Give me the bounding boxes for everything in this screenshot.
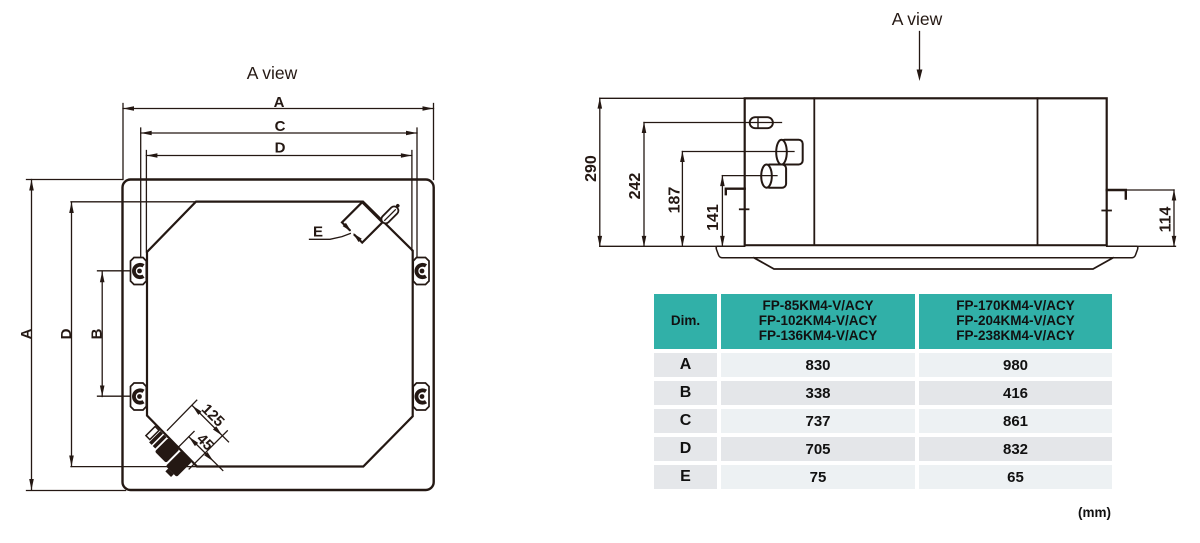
- svg-text:141: 141: [705, 204, 722, 231]
- svg-text:187: 187: [667, 187, 684, 214]
- svg-text:E: E: [313, 224, 323, 241]
- svg-text:A: A: [274, 94, 285, 111]
- svg-text:242: 242: [627, 173, 644, 200]
- svg-text:D: D: [275, 139, 286, 156]
- svg-text:114: 114: [1158, 206, 1175, 232]
- svg-text:A view: A view: [247, 63, 298, 83]
- svg-text:A view: A view: [892, 9, 943, 29]
- svg-text:290: 290: [583, 155, 600, 182]
- svg-text:A: A: [18, 328, 35, 339]
- svg-text:B: B: [89, 328, 106, 339]
- svg-text:C: C: [275, 118, 286, 135]
- svg-text:D: D: [58, 328, 75, 339]
